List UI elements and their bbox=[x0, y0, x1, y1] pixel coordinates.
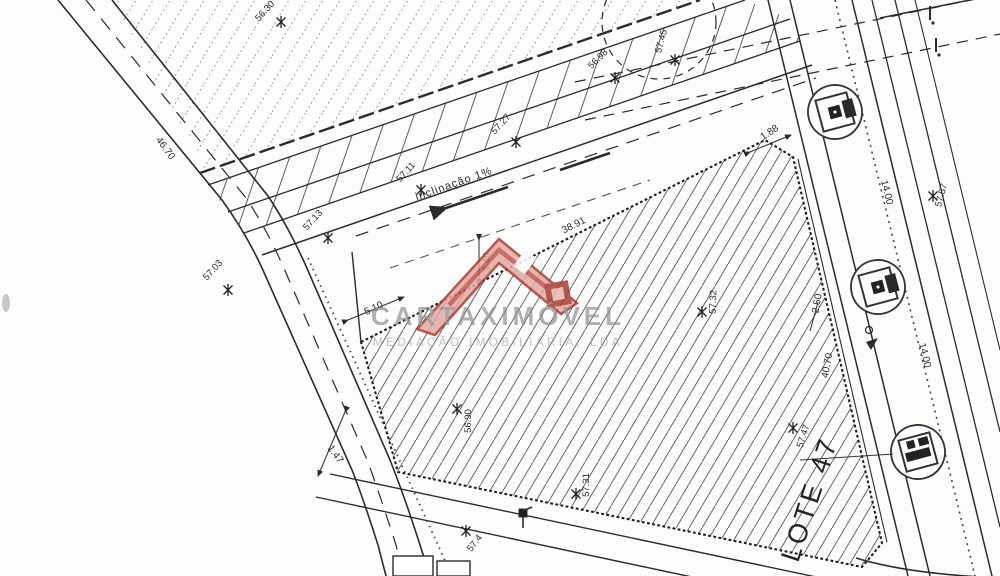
dim-label-right-road-b: 14.00 bbox=[916, 342, 933, 369]
survey-tick-1 bbox=[930, 6, 935, 25]
dim-label-right-road-a: 14.00 bbox=[878, 179, 895, 206]
dim-label-left-road: 46.70 bbox=[153, 135, 177, 162]
spot-height-label-j: 56.90 bbox=[463, 409, 474, 433]
spot-height-label-g: 57.03 bbox=[201, 258, 225, 283]
slope-direction-arrow bbox=[446, 187, 508, 208]
site-plan-drawing: 38.91 inclinação 1% 5.10 3.40 1.88 2.50 … bbox=[0, 0, 1000, 576]
spot-height-label-k: 57.31 bbox=[581, 473, 592, 497]
boundary-stub-line bbox=[352, 252, 361, 342]
survey-tick-2 bbox=[936, 38, 941, 57]
utility-pole-symbol bbox=[519, 507, 532, 528]
small-building-outline-1 bbox=[393, 556, 433, 576]
small-building-outline-2 bbox=[437, 561, 470, 576]
spot-height-label-h: 57.57 bbox=[933, 182, 950, 208]
spot-height-label-i: 57.32 bbox=[708, 290, 720, 314]
watermark-subtitle-text: MEDIAÇÃO IMOBILIÁRIA, LDA bbox=[373, 336, 623, 349]
spot-height-label-m: 57.4 bbox=[465, 533, 485, 554]
centerline-thick-dash bbox=[560, 153, 610, 170]
scan-smudge bbox=[2, 294, 10, 312]
dim-label-corner-cut: 1.88 bbox=[758, 123, 781, 143]
site-plan-page: 38.91 inclinação 1% 5.10 3.40 1.88 2.50 … bbox=[0, 0, 1000, 576]
watermark-brand-text: CARTAXIMÓVEL bbox=[371, 301, 625, 331]
